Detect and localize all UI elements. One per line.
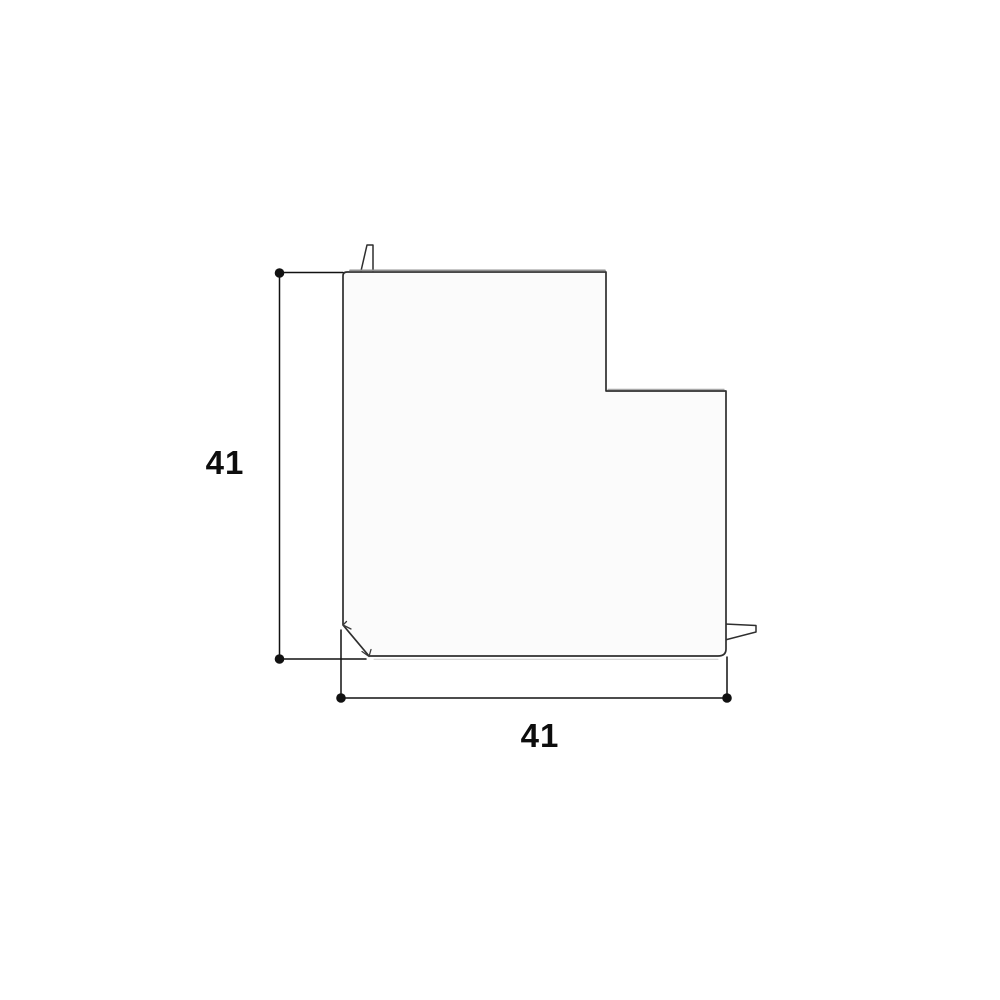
width-dimension-label: 41	[521, 717, 560, 754]
height-dim-dot-top	[275, 268, 285, 278]
right-tab	[725, 624, 756, 640]
width-dim-dot-left	[336, 693, 346, 703]
height-dim-dot-bottom	[275, 654, 285, 664]
top-tab	[361, 245, 373, 271]
part-geometry	[343, 245, 756, 659]
technical-drawing-canvas: 41 41	[0, 0, 1000, 1000]
drawing-page: 41 41	[0, 0, 1000, 1000]
height-dimension-label: 41	[206, 444, 245, 481]
part-outline	[343, 272, 726, 656]
width-dim-dot-right	[722, 693, 732, 703]
